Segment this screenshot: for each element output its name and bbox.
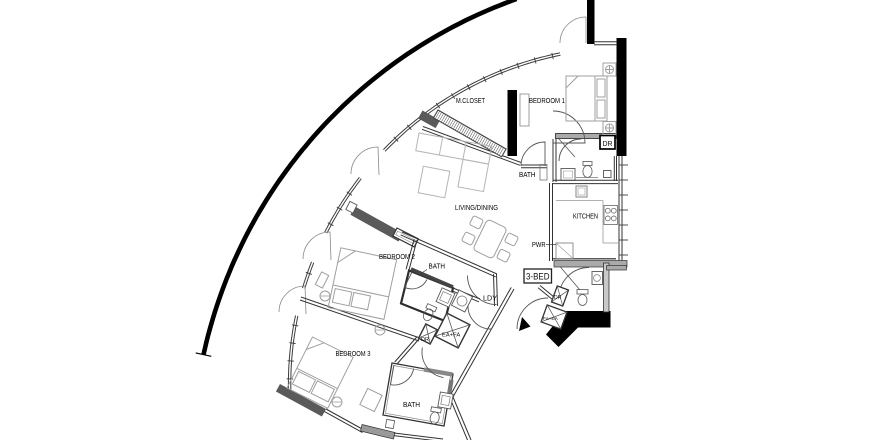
svg-text:3-BED: 3-BED	[526, 272, 550, 283]
svg-text:KITCHEN: KITCHEN	[573, 214, 598, 221]
svg-text:BATH: BATH	[519, 172, 536, 179]
svg-text:LIVING/DINING: LIVING/DINING	[455, 205, 498, 212]
svg-text:EA+FA: EA+FA	[442, 333, 460, 339]
svg-text:BEDROOM 3: BEDROOM 3	[336, 351, 371, 358]
svg-text:BEDROOM 1: BEDROOM 1	[529, 98, 565, 105]
svg-text:LDY: LDY	[483, 296, 497, 303]
svg-text:PWR: PWR	[532, 242, 546, 249]
svg-text:BATH: BATH	[403, 402, 420, 409]
svg-text:DR: DR	[603, 141, 613, 148]
svg-text:M.CLOSET: M.CLOSET	[456, 98, 486, 105]
svg-text:DR: DR	[421, 337, 429, 343]
svg-text:DR: DR	[554, 295, 562, 301]
svg-text:Fa+EA: Fa+EA	[543, 316, 559, 322]
svg-text:BEDROOM 2: BEDROOM 2	[379, 254, 415, 261]
svg-text:BATH: BATH	[429, 264, 446, 271]
